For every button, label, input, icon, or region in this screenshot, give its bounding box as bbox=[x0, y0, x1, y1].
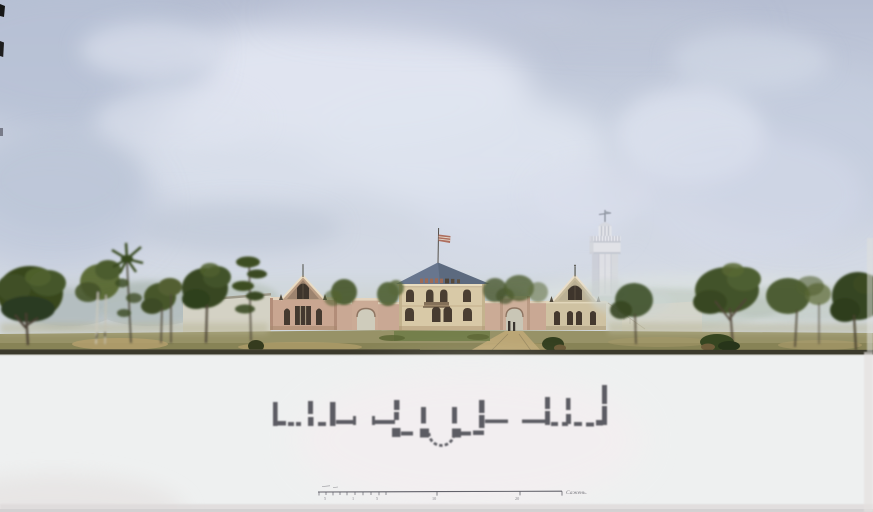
svg-text:5: 5 bbox=[324, 496, 326, 501]
svg-text:10: 10 bbox=[432, 496, 436, 501]
svg-text:1: 1 bbox=[352, 496, 354, 501]
svg-text:20: 20 bbox=[515, 496, 519, 501]
svg-text:Сажень.: Сажень. bbox=[566, 490, 587, 496]
svg-text:5: 5 bbox=[376, 496, 378, 501]
